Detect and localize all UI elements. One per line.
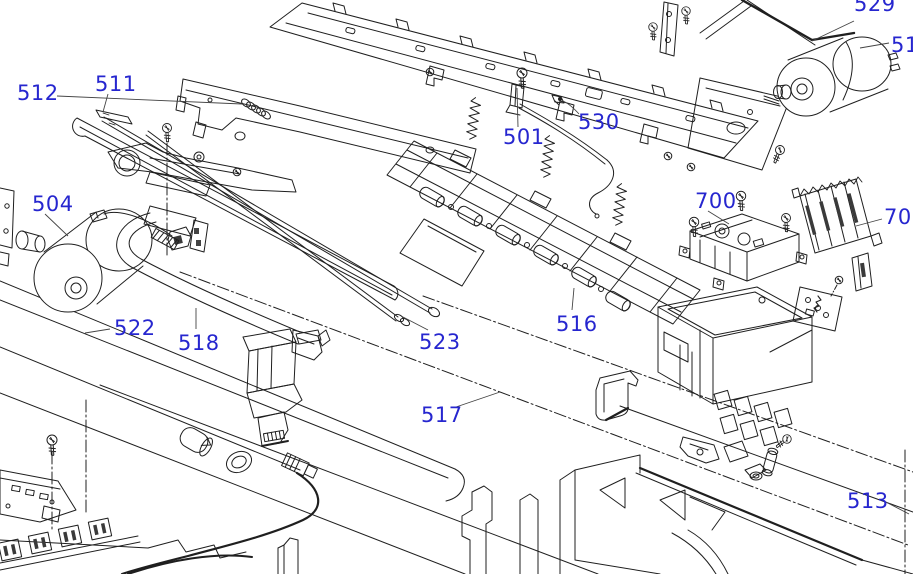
drive-belt-529 [742, 0, 854, 45]
left-bracket-plate [176, 79, 476, 173]
diagram-line-art [0, 0, 913, 574]
part-label-511: 511 [95, 73, 137, 95]
ffc-holder-bracket [243, 329, 321, 446]
part-label-517: 517 [421, 404, 463, 426]
part-label-516: 516 [556, 313, 598, 335]
grommet-ring [223, 447, 255, 476]
roller-cylinder [177, 424, 215, 458]
encoder-pcb [793, 287, 842, 331]
roller-assembly-516 [387, 141, 700, 324]
part-label-504: 504 [32, 193, 74, 215]
part-label-518: 518 [178, 332, 220, 354]
carriage-shaft-and-belt [73, 110, 442, 327]
contact-module-701 [792, 177, 882, 291]
part-label-529: 529 [854, 0, 896, 15]
part-label-501: 501 [503, 126, 545, 148]
left-edge-bracket [0, 188, 14, 266]
corner-clip [596, 371, 638, 420]
part-label-530: 530 [578, 111, 620, 133]
part-label-522: 522 [114, 317, 156, 339]
carriage-assembly [658, 287, 812, 446]
coil-spring [612, 183, 628, 226]
spring-512 [240, 97, 272, 120]
motor-504 [16, 209, 191, 312]
bottom-pcb [0, 470, 76, 522]
part-label-700: 700 [695, 190, 737, 212]
part-label-513: 513 [847, 490, 889, 512]
belt-tensioner [108, 143, 296, 196]
part-label-512: 512 [17, 82, 59, 104]
part-label-51x: 51 [891, 34, 913, 56]
construction-lines [52, 143, 913, 574]
part-label-523: 523 [419, 331, 461, 353]
part-label-701: 701 [884, 206, 913, 228]
coil-spring [466, 97, 482, 140]
roller-couplers [449, 205, 604, 292]
motor-51x [774, 37, 901, 116]
parts-diagram: 512 511 529 51 504 501 530 700 701 522 5… [0, 0, 913, 574]
cable-assembly [122, 453, 318, 574]
